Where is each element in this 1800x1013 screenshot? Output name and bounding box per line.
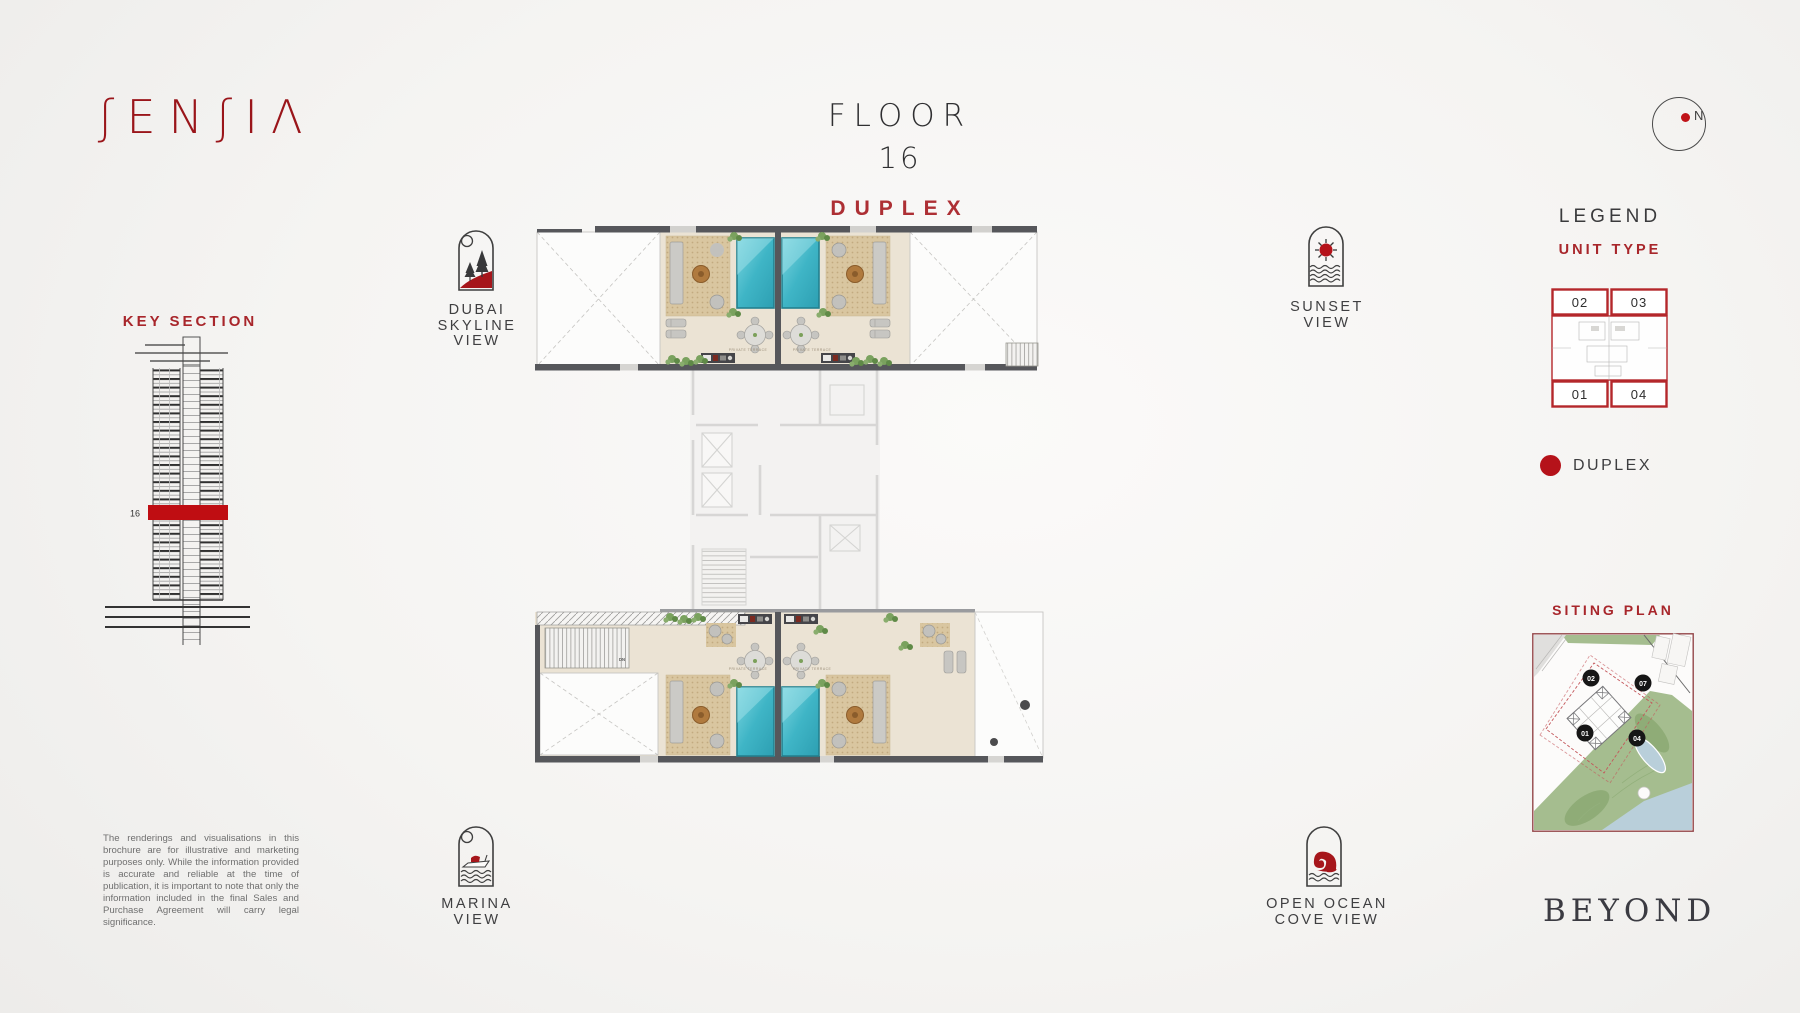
- duplex-legend-label: DUPLEX: [1573, 457, 1652, 475]
- stairs-down-label: DN: [619, 657, 625, 662]
- bottom-wing-plan: DN: [535, 609, 1043, 763]
- sun-icon: [462, 236, 473, 247]
- top-wing-plan: PRIVATE TERRACE PRIVATE TERRACE: [535, 226, 1038, 371]
- floor-label: FLOOR: [750, 98, 1050, 134]
- sun-icon: [1315, 239, 1337, 261]
- tower-core: [183, 363, 200, 645]
- unit-box-label: 02: [1572, 295, 1588, 310]
- bbq-counter: [821, 353, 855, 363]
- terrace-label: PRIVATE TERRACE: [729, 348, 768, 352]
- floor-number: 16: [750, 141, 1050, 175]
- compass-circle-icon: [1652, 97, 1706, 151]
- key-section-title: KEY SECTION: [120, 313, 260, 330]
- terrace-label: PRIVATE TERRACE: [793, 348, 832, 352]
- marina-view-icon: [455, 822, 497, 890]
- unit-type-key-diagram: 02 03 01 04: [1551, 288, 1668, 408]
- marker-label: 02: [1587, 676, 1595, 683]
- waves-icon: [1309, 874, 1339, 882]
- siting-plan-map: 02 07 01 04: [1532, 633, 1694, 832]
- terrace-label: PRIVATE TERRACE: [793, 667, 832, 671]
- marker-label: 01: [1581, 731, 1589, 738]
- sensia-logo: ʃENʃIΛ: [98, 90, 315, 144]
- legend-block: LEGEND UNIT TYPE: [1551, 206, 1669, 258]
- compass-north-label: N: [1694, 108, 1703, 123]
- floor-16-marker-label: 16: [130, 509, 140, 519]
- siting-plan-title: SITING PLAN: [1532, 602, 1694, 618]
- tower-right-wing: [200, 368, 223, 600]
- stairs: [545, 628, 629, 668]
- floor-title-block: FLOOR 16 DUPLEX: [750, 98, 1050, 221]
- beyond-logo: BEYOND: [1543, 893, 1713, 929]
- unit-box-label: 03: [1631, 295, 1647, 310]
- ghost-core-plan: [690, 367, 880, 612]
- marina-view-label: MARINA VIEW: [407, 897, 547, 928]
- stairs: [1006, 343, 1038, 366]
- open-ocean-cove-view-icon: [1303, 822, 1345, 890]
- floor-16-highlight: [148, 505, 228, 520]
- unit-type-title: UNIT TYPE: [1551, 242, 1669, 258]
- waves-icon: [461, 871, 491, 883]
- duplex-legend-dot-icon: [1540, 455, 1561, 476]
- bbq-counter: [784, 614, 818, 624]
- unit-box-label: 01: [1572, 387, 1588, 402]
- bbq-counter: [738, 614, 772, 624]
- marker-label: 07: [1639, 681, 1647, 688]
- open-ocean-cove-view-label: OPEN OCEAN COVE VIEW: [1257, 897, 1397, 928]
- unit-box-label: 04: [1631, 387, 1647, 402]
- legend-title: LEGEND: [1551, 206, 1669, 228]
- disclaimer-text: The renderings and visualisations in thi…: [103, 833, 299, 929]
- tower-podium: [105, 607, 250, 627]
- compass-north-dot-icon: [1681, 113, 1690, 122]
- dubai-skyline-view-icon: [455, 226, 497, 294]
- key-section-elevation: 16: [90, 335, 265, 655]
- tower-left-wing: [153, 368, 180, 600]
- marker-label: 04: [1633, 736, 1641, 743]
- tower-crown: [135, 345, 228, 361]
- terrace-label: PRIVATE TERRACE: [729, 667, 768, 671]
- sun-icon: [462, 832, 473, 843]
- sunset-view-icon: [1305, 222, 1347, 290]
- wave-curl-icon: [1314, 852, 1336, 872]
- floor-plan-drawing: PRIVATE TERRACE PRIVATE TERRACE DN: [520, 215, 1060, 785]
- brochure-page: ʃENʃIΛ FLOOR 16 DUPLEX N KEY SECTION: [0, 0, 1800, 1013]
- sunset-view-label: SUNSET VIEW: [1257, 300, 1397, 331]
- hill-shape: [460, 271, 492, 288]
- boat-icon: [463, 855, 489, 867]
- waves-icon: [1310, 266, 1340, 283]
